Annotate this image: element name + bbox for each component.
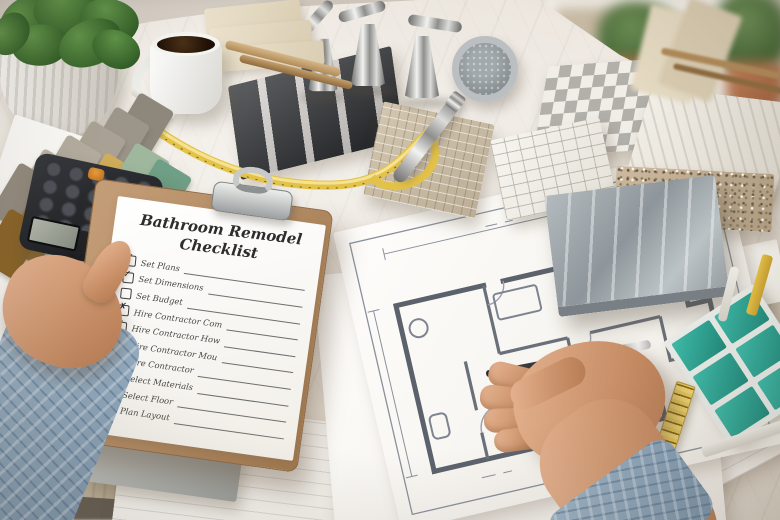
shower-head (452, 36, 518, 102)
coffee (157, 36, 215, 53)
shadow (300, 92, 346, 102)
shadow (348, 86, 398, 96)
checkbox-icon (120, 288, 132, 300)
checklist-item-label: Plan Layout (119, 406, 170, 423)
checklist-item-label: Set Plans (140, 258, 180, 273)
marble-slab-sample (544, 175, 730, 317)
photo-bathroom-remodel-planning: Bathroom Remodel Checklist ✓Set Plans ✓S… (0, 0, 780, 520)
